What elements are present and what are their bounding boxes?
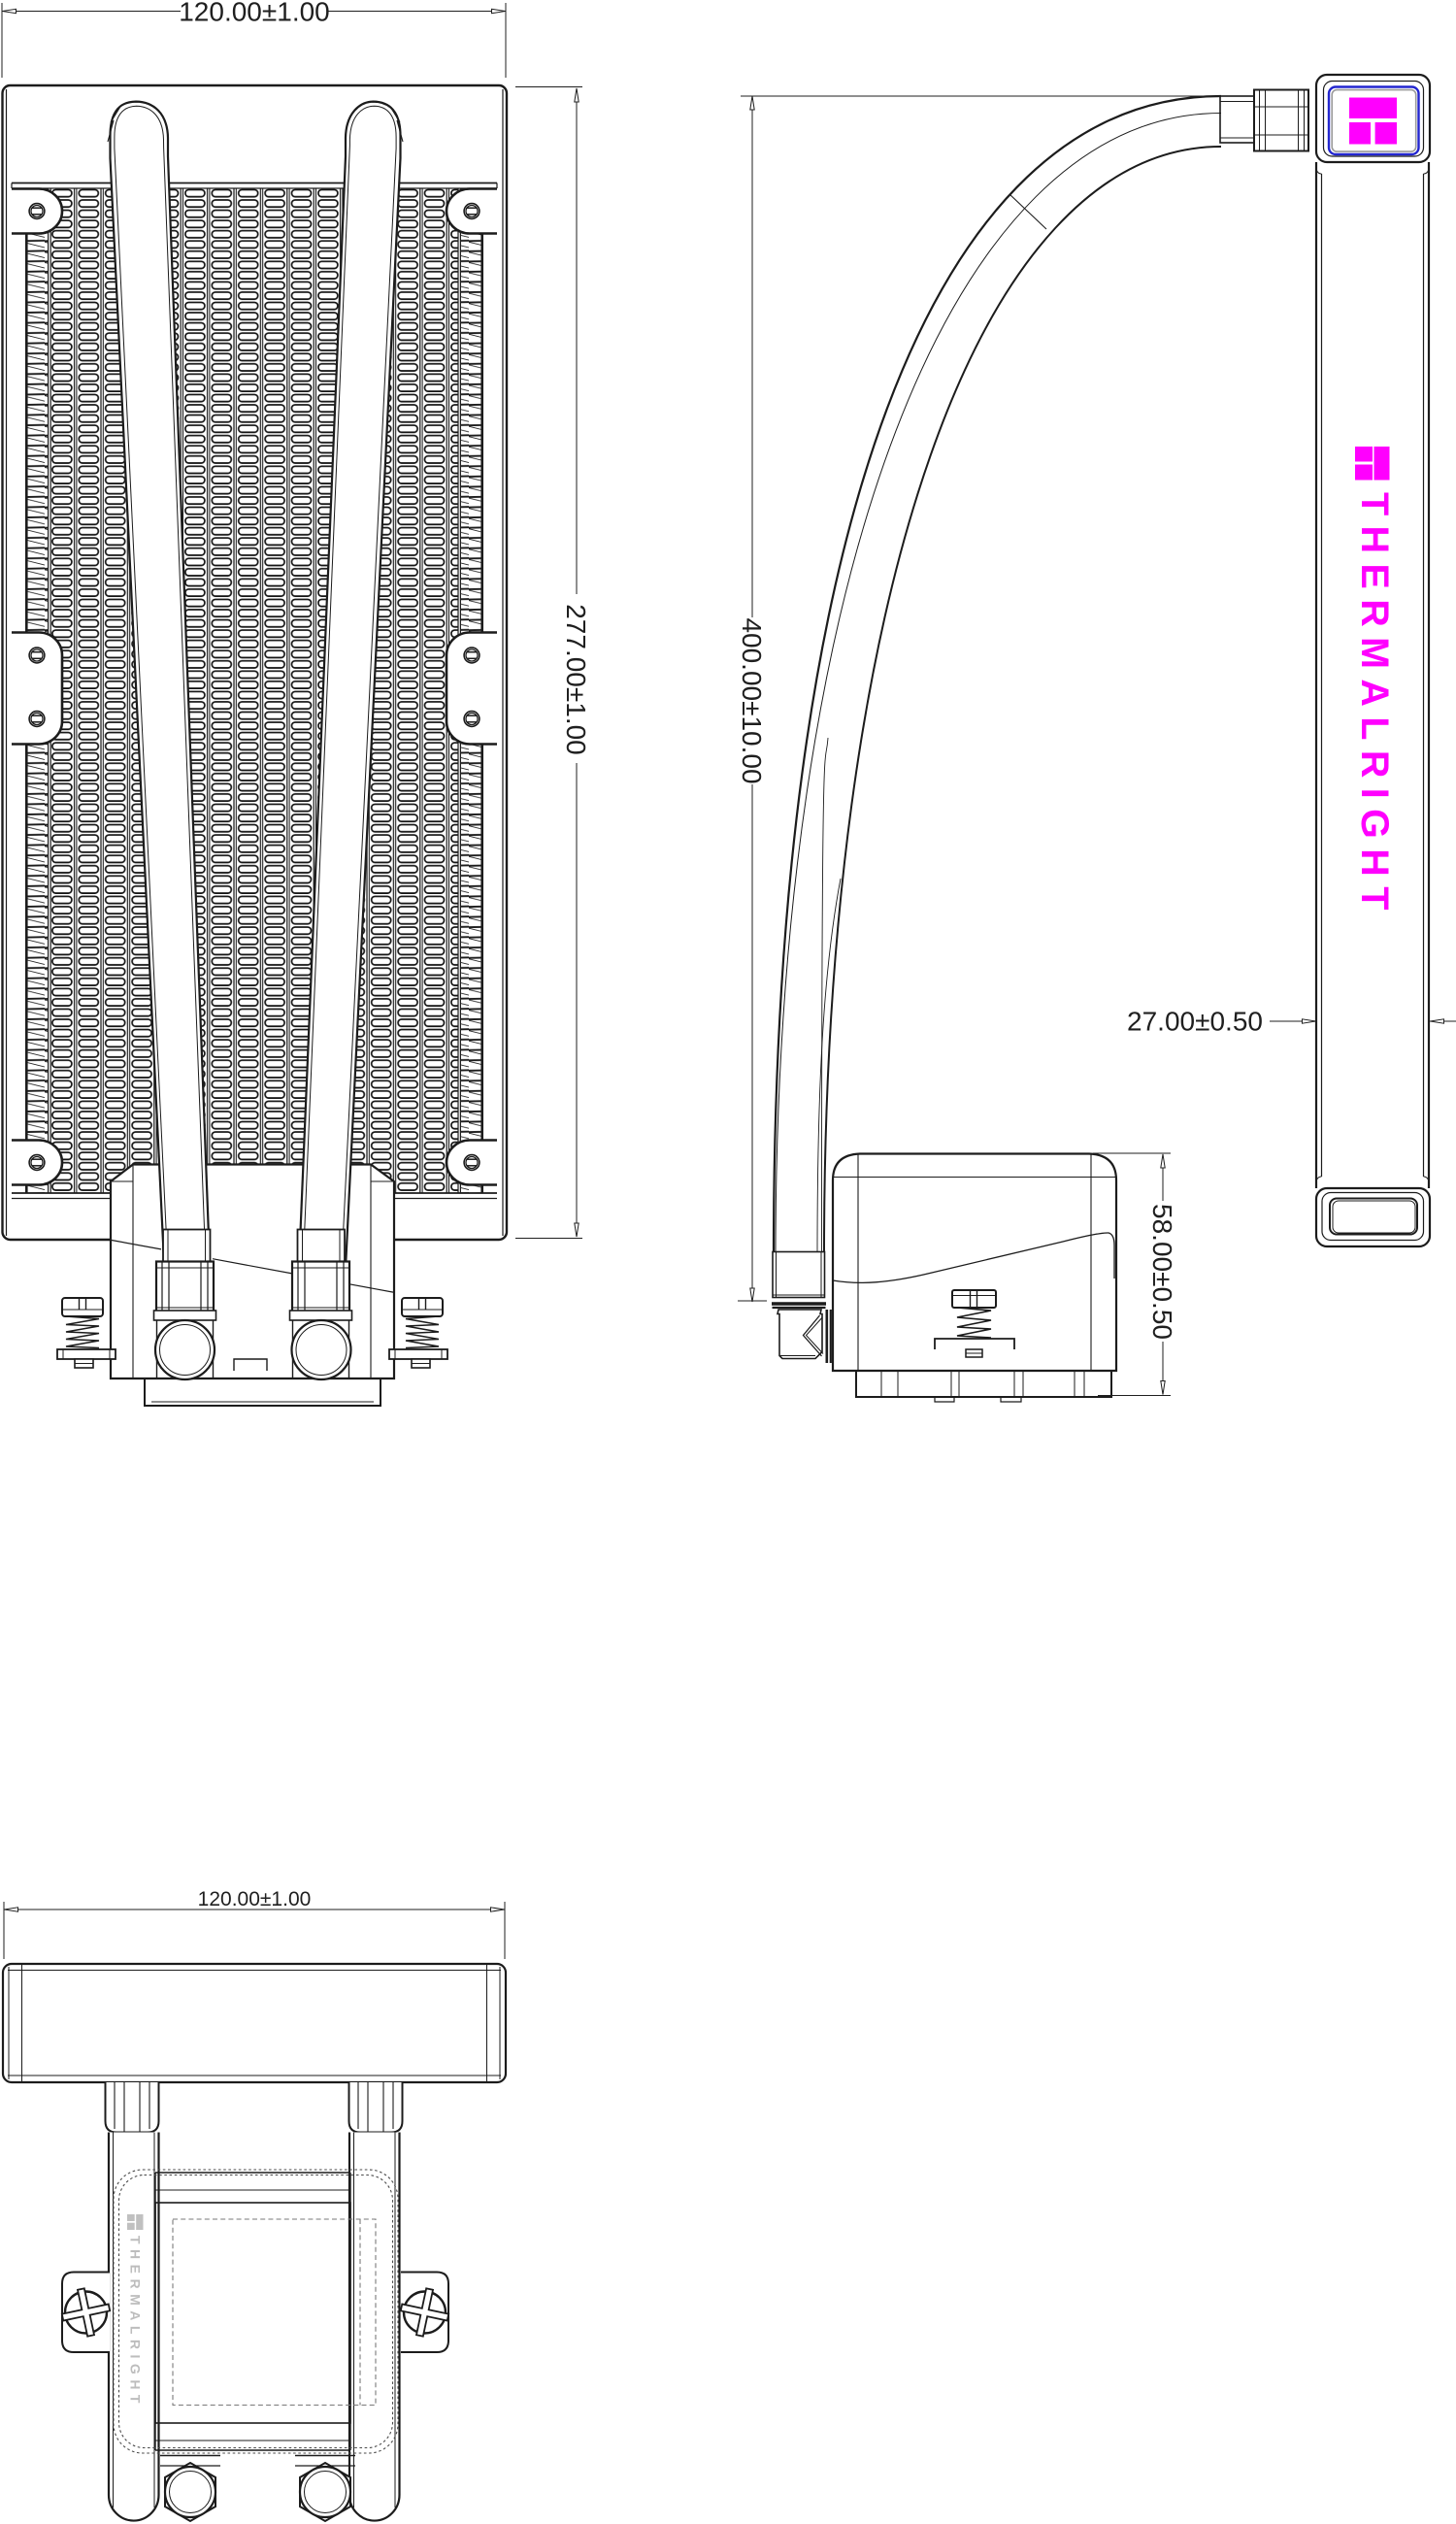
svg-text:58.00±0.50: 58.00±0.50 bbox=[1147, 1204, 1177, 1340]
svg-text:400.00±10.00: 400.00±10.00 bbox=[737, 617, 767, 783]
svg-text:THERMALRIGHT: THERMALRIGHT bbox=[1353, 492, 1396, 920]
svg-text:THERMALRIGHT: THERMALRIGHT bbox=[128, 2236, 144, 2408]
svg-text:27.00±0.50: 27.00±0.50 bbox=[1127, 1007, 1263, 1037]
svg-text:120.00±1.00: 120.00±1.00 bbox=[179, 0, 330, 27]
svg-text:277.00±1.00: 277.00±1.00 bbox=[561, 604, 591, 755]
svg-text:120.00±1.00: 120.00±1.00 bbox=[198, 1888, 312, 1910]
